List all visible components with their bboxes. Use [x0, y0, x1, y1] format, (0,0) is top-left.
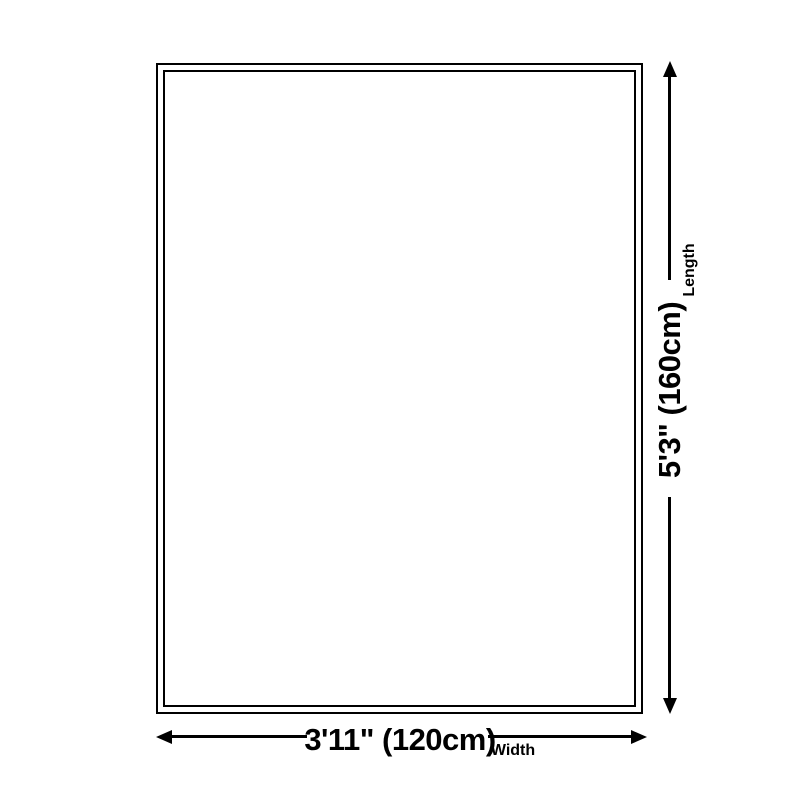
product-outline — [156, 63, 643, 714]
arrowhead-up-icon — [663, 61, 677, 77]
width-value-label: 3'11" (120cm) — [304, 722, 495, 758]
dimension-line-vertical-upper — [668, 76, 671, 280]
arrowhead-down-icon — [663, 698, 677, 714]
dimension-line-horizontal-right — [488, 735, 633, 738]
size-diagram: Length 5'3" (160cm) 3'11" (120cm) Width — [0, 0, 800, 800]
arrowhead-right-icon — [631, 730, 647, 744]
length-axis-label: Length — [681, 243, 699, 296]
width-axis-label: Width — [491, 742, 535, 760]
length-value-label: 5'3" (160cm) — [652, 302, 688, 478]
dimension-line-horizontal-left — [170, 735, 307, 738]
product-outline-inner-border — [163, 70, 636, 707]
dimension-line-vertical-lower — [668, 497, 671, 698]
